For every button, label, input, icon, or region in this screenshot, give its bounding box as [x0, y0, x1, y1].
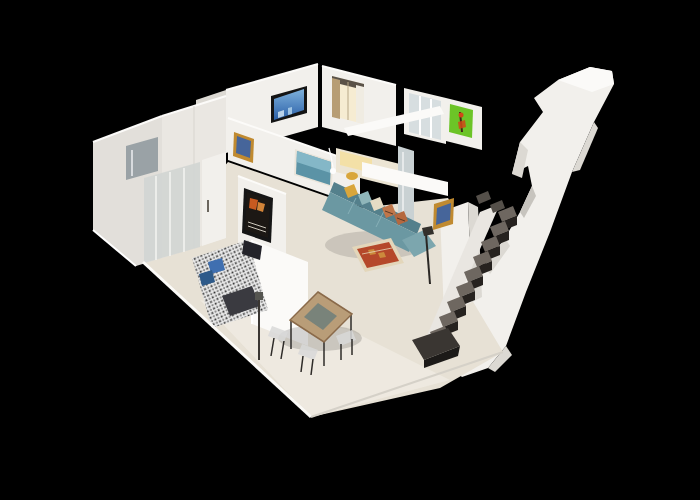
dollhouse-3d-view[interactable]: [0, 0, 700, 500]
green-artwork: [447, 101, 476, 142]
yellow-stool: [346, 172, 358, 180]
green-art-wall: [446, 98, 482, 150]
dollhouse-3d-viewport[interactable]: [0, 0, 700, 500]
curtained-window: [332, 76, 364, 124]
shower-glass: [144, 162, 200, 263]
bathroom-door: [202, 152, 226, 246]
